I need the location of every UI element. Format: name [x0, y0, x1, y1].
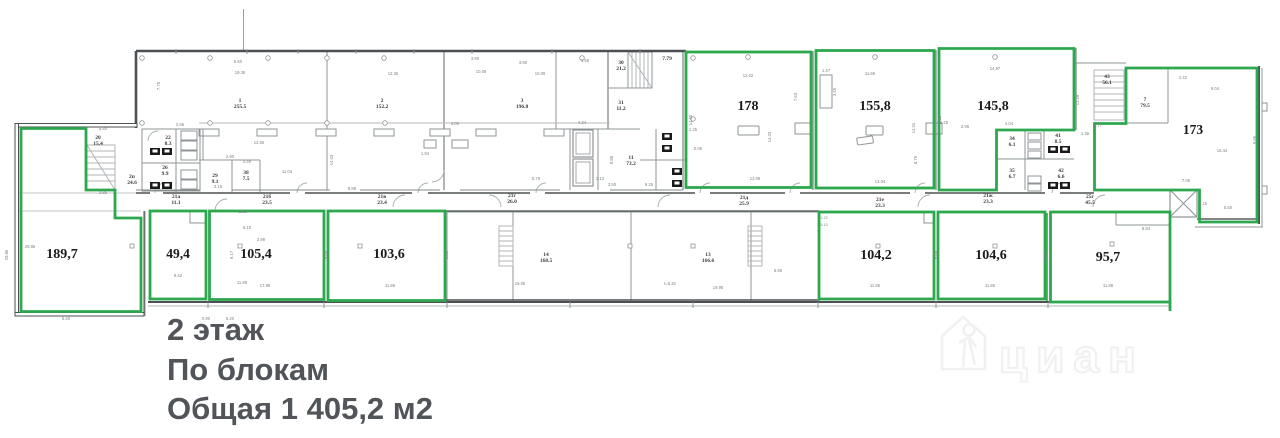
svg-text:11.66: 11.66 — [865, 71, 876, 76]
svg-text:173: 173 — [1183, 122, 1204, 137]
svg-text:23.3: 23.3 — [875, 203, 885, 209]
svg-text:8.5: 8.5 — [1055, 139, 1062, 145]
svg-text:168.5: 168.5 — [540, 258, 553, 264]
svg-text:155,8: 155,8 — [859, 99, 891, 114]
svg-text:9.08: 9.08 — [323, 250, 328, 259]
svg-text:7.06: 7.06 — [1182, 178, 1191, 183]
svg-text:9.17: 9.17 — [229, 250, 234, 259]
svg-text:8.88: 8.88 — [609, 155, 614, 164]
svg-text:29.86: 29.86 — [25, 244, 36, 249]
svg-text:9.42: 9.42 — [174, 273, 183, 278]
svg-text:6.60: 6.60 — [234, 59, 243, 64]
svg-text:2.42: 2.42 — [1179, 75, 1188, 80]
svg-text:104,6: 104,6 — [975, 248, 1007, 263]
svg-text:7.79: 7.79 — [662, 56, 672, 62]
svg-text:2.50: 2.50 — [239, 209, 248, 214]
svg-text:15.4: 15.4 — [93, 141, 103, 147]
svg-text:9.08: 9.08 — [933, 250, 938, 259]
svg-text:19.35: 19.35 — [235, 70, 246, 75]
svg-text:25.9: 25.9 — [739, 201, 749, 207]
svg-text:189,7: 189,7 — [46, 247, 78, 262]
svg-text:4.00: 4.00 — [451, 121, 460, 126]
svg-text:14.97: 14.97 — [990, 66, 1001, 71]
svg-text:13.09: 13.09 — [750, 176, 761, 181]
svg-text:166.6: 166.6 — [702, 258, 715, 264]
svg-text:178: 178 — [738, 99, 759, 114]
svg-text:3.90: 3.90 — [519, 60, 528, 65]
svg-text:11.04: 11.04 — [282, 169, 293, 174]
svg-text:6.95: 6.95 — [774, 268, 783, 273]
svg-text:9.9: 9.9 — [162, 171, 169, 177]
svg-text:12.60: 12.60 — [254, 140, 265, 145]
svg-text:5.79: 5.79 — [532, 176, 541, 181]
svg-text:6.1: 6.1 — [1009, 142, 1016, 148]
svg-text:3.45: 3.45 — [832, 87, 837, 96]
svg-text:t=5.32: t=5.32 — [664, 281, 676, 286]
svg-text:145,8: 145,8 — [977, 99, 1009, 114]
svg-text:1.22: 1.22 — [820, 216, 827, 220]
svg-text:9.08: 9.08 — [444, 250, 449, 259]
svg-text:8.84: 8.84 — [1142, 226, 1151, 231]
svg-text:4.04: 4.04 — [1005, 121, 1014, 126]
svg-text:7.79: 7.79 — [156, 81, 161, 90]
svg-text:79.5: 79.5 — [1140, 103, 1150, 109]
svg-text:2.98: 2.98 — [257, 237, 266, 242]
svg-text:11.88: 11.88 — [1103, 283, 1114, 288]
svg-text:14.03: 14.03 — [329, 154, 334, 165]
svg-text:9.07: 9.07 — [1043, 250, 1048, 259]
svg-text:73.2: 73.2 — [626, 161, 636, 167]
svg-text:13.04: 13.04 — [875, 179, 886, 184]
svg-text:2.49: 2.49 — [243, 159, 252, 164]
svg-text:1.25: 1.25 — [689, 127, 698, 132]
svg-text:11.85: 11.85 — [870, 283, 881, 288]
svg-text:8.3: 8.3 — [165, 141, 172, 147]
svg-text:255.5: 255.5 — [234, 104, 247, 110]
svg-text:3.15: 3.15 — [1199, 201, 1208, 206]
svg-text:0.06: 0.06 — [694, 146, 703, 151]
svg-text:21б: 21б — [263, 193, 272, 200]
svg-text:7.63: 7.63 — [793, 92, 798, 101]
svg-text:3.90: 3.90 — [471, 56, 480, 61]
svg-text:1.59: 1.59 — [581, 58, 590, 63]
svg-text:23.4: 23.4 — [377, 200, 387, 206]
svg-text:12.02: 12.02 — [743, 73, 754, 78]
svg-text:5.10: 5.10 — [243, 225, 252, 230]
svg-text:29.86: 29.86 — [4, 249, 9, 260]
svg-text:23.5: 23.5 — [262, 200, 272, 206]
svg-text:14.55: 14.55 — [688, 114, 693, 125]
svg-text:8.79: 8.79 — [913, 155, 918, 164]
svg-text:24.6: 24.6 — [127, 180, 137, 186]
svg-text:2.77: 2.77 — [1094, 123, 1103, 128]
svg-text:3.50: 3.50 — [608, 182, 617, 187]
svg-text:196.8: 196.8 — [516, 104, 529, 110]
svg-text:5.80: 5.80 — [99, 126, 108, 131]
svg-text:3.85: 3.85 — [99, 190, 108, 195]
svg-text:7.5: 7.5 — [243, 176, 250, 182]
svg-text:105,4: 105,4 — [240, 247, 272, 262]
svg-text:3.13: 3.13 — [596, 176, 605, 181]
svg-text:2.96: 2.96 — [961, 124, 970, 129]
svg-text:104,2: 104,2 — [860, 248, 892, 263]
svg-text:2.90: 2.90 — [226, 154, 235, 159]
svg-text:9.04: 9.04 — [1211, 86, 1220, 91]
svg-text:152.2: 152.2 — [376, 104, 389, 110]
svg-text:11.2: 11.2 — [616, 106, 626, 112]
svg-text:3.10: 3.10 — [820, 223, 827, 227]
svg-text:11.85: 11.85 — [985, 283, 996, 288]
svg-text:23.3: 23.3 — [983, 199, 993, 205]
svg-text:21.2: 21.2 — [616, 66, 626, 72]
svg-text:6.6: 6.6 — [1058, 174, 1065, 180]
svg-text:7.52: 7.52 — [937, 115, 942, 124]
svg-text:9.25: 9.25 — [645, 182, 654, 187]
svg-text:49,4: 49,4 — [166, 246, 190, 261]
svg-text:19.95: 19.95 — [713, 285, 724, 290]
svg-text:5.40: 5.40 — [62, 316, 71, 321]
svg-text:5.60: 5.60 — [1224, 205, 1233, 210]
svg-text:45.5: 45.5 — [1085, 200, 1095, 206]
svg-text:8.88: 8.88 — [348, 186, 357, 191]
svg-text:15.44: 15.44 — [1217, 148, 1228, 153]
svg-text:6.7: 6.7 — [1009, 174, 1016, 180]
svg-text:1.47: 1.47 — [822, 68, 831, 73]
svg-text:103,6: 103,6 — [373, 247, 405, 262]
svg-text:10.08: 10.08 — [476, 69, 487, 74]
svg-text:11.1: 11.1 — [171, 200, 181, 206]
svg-text:1.94: 1.94 — [421, 151, 430, 156]
svg-text:95,7: 95,7 — [1096, 250, 1121, 265]
svg-text:циан: циан — [999, 330, 1145, 382]
svg-text:3.15: 3.15 — [214, 184, 223, 189]
svg-text:11.86: 11.86 — [385, 283, 396, 288]
svg-text:12.36: 12.36 — [388, 71, 399, 76]
svg-text:56.1: 56.1 — [1102, 80, 1112, 86]
svg-text:9.86: 9.86 — [1252, 135, 1257, 144]
svg-text:1.36: 1.36 — [1081, 131, 1090, 136]
svg-text:2.96: 2.96 — [176, 122, 185, 127]
svg-text:14.04: 14.04 — [911, 122, 916, 133]
svg-text:4.34: 4.34 — [578, 120, 587, 125]
svg-text:13.59: 13.59 — [1075, 94, 1080, 105]
svg-text:19.05: 19.05 — [515, 281, 526, 286]
svg-text:17.89: 17.89 — [260, 283, 271, 288]
svg-text:26.0: 26.0 — [507, 199, 517, 205]
svg-text:14.03: 14.03 — [767, 131, 772, 142]
svg-text:11.89: 11.89 — [237, 280, 248, 285]
svg-text:10.08: 10.08 — [535, 71, 546, 76]
